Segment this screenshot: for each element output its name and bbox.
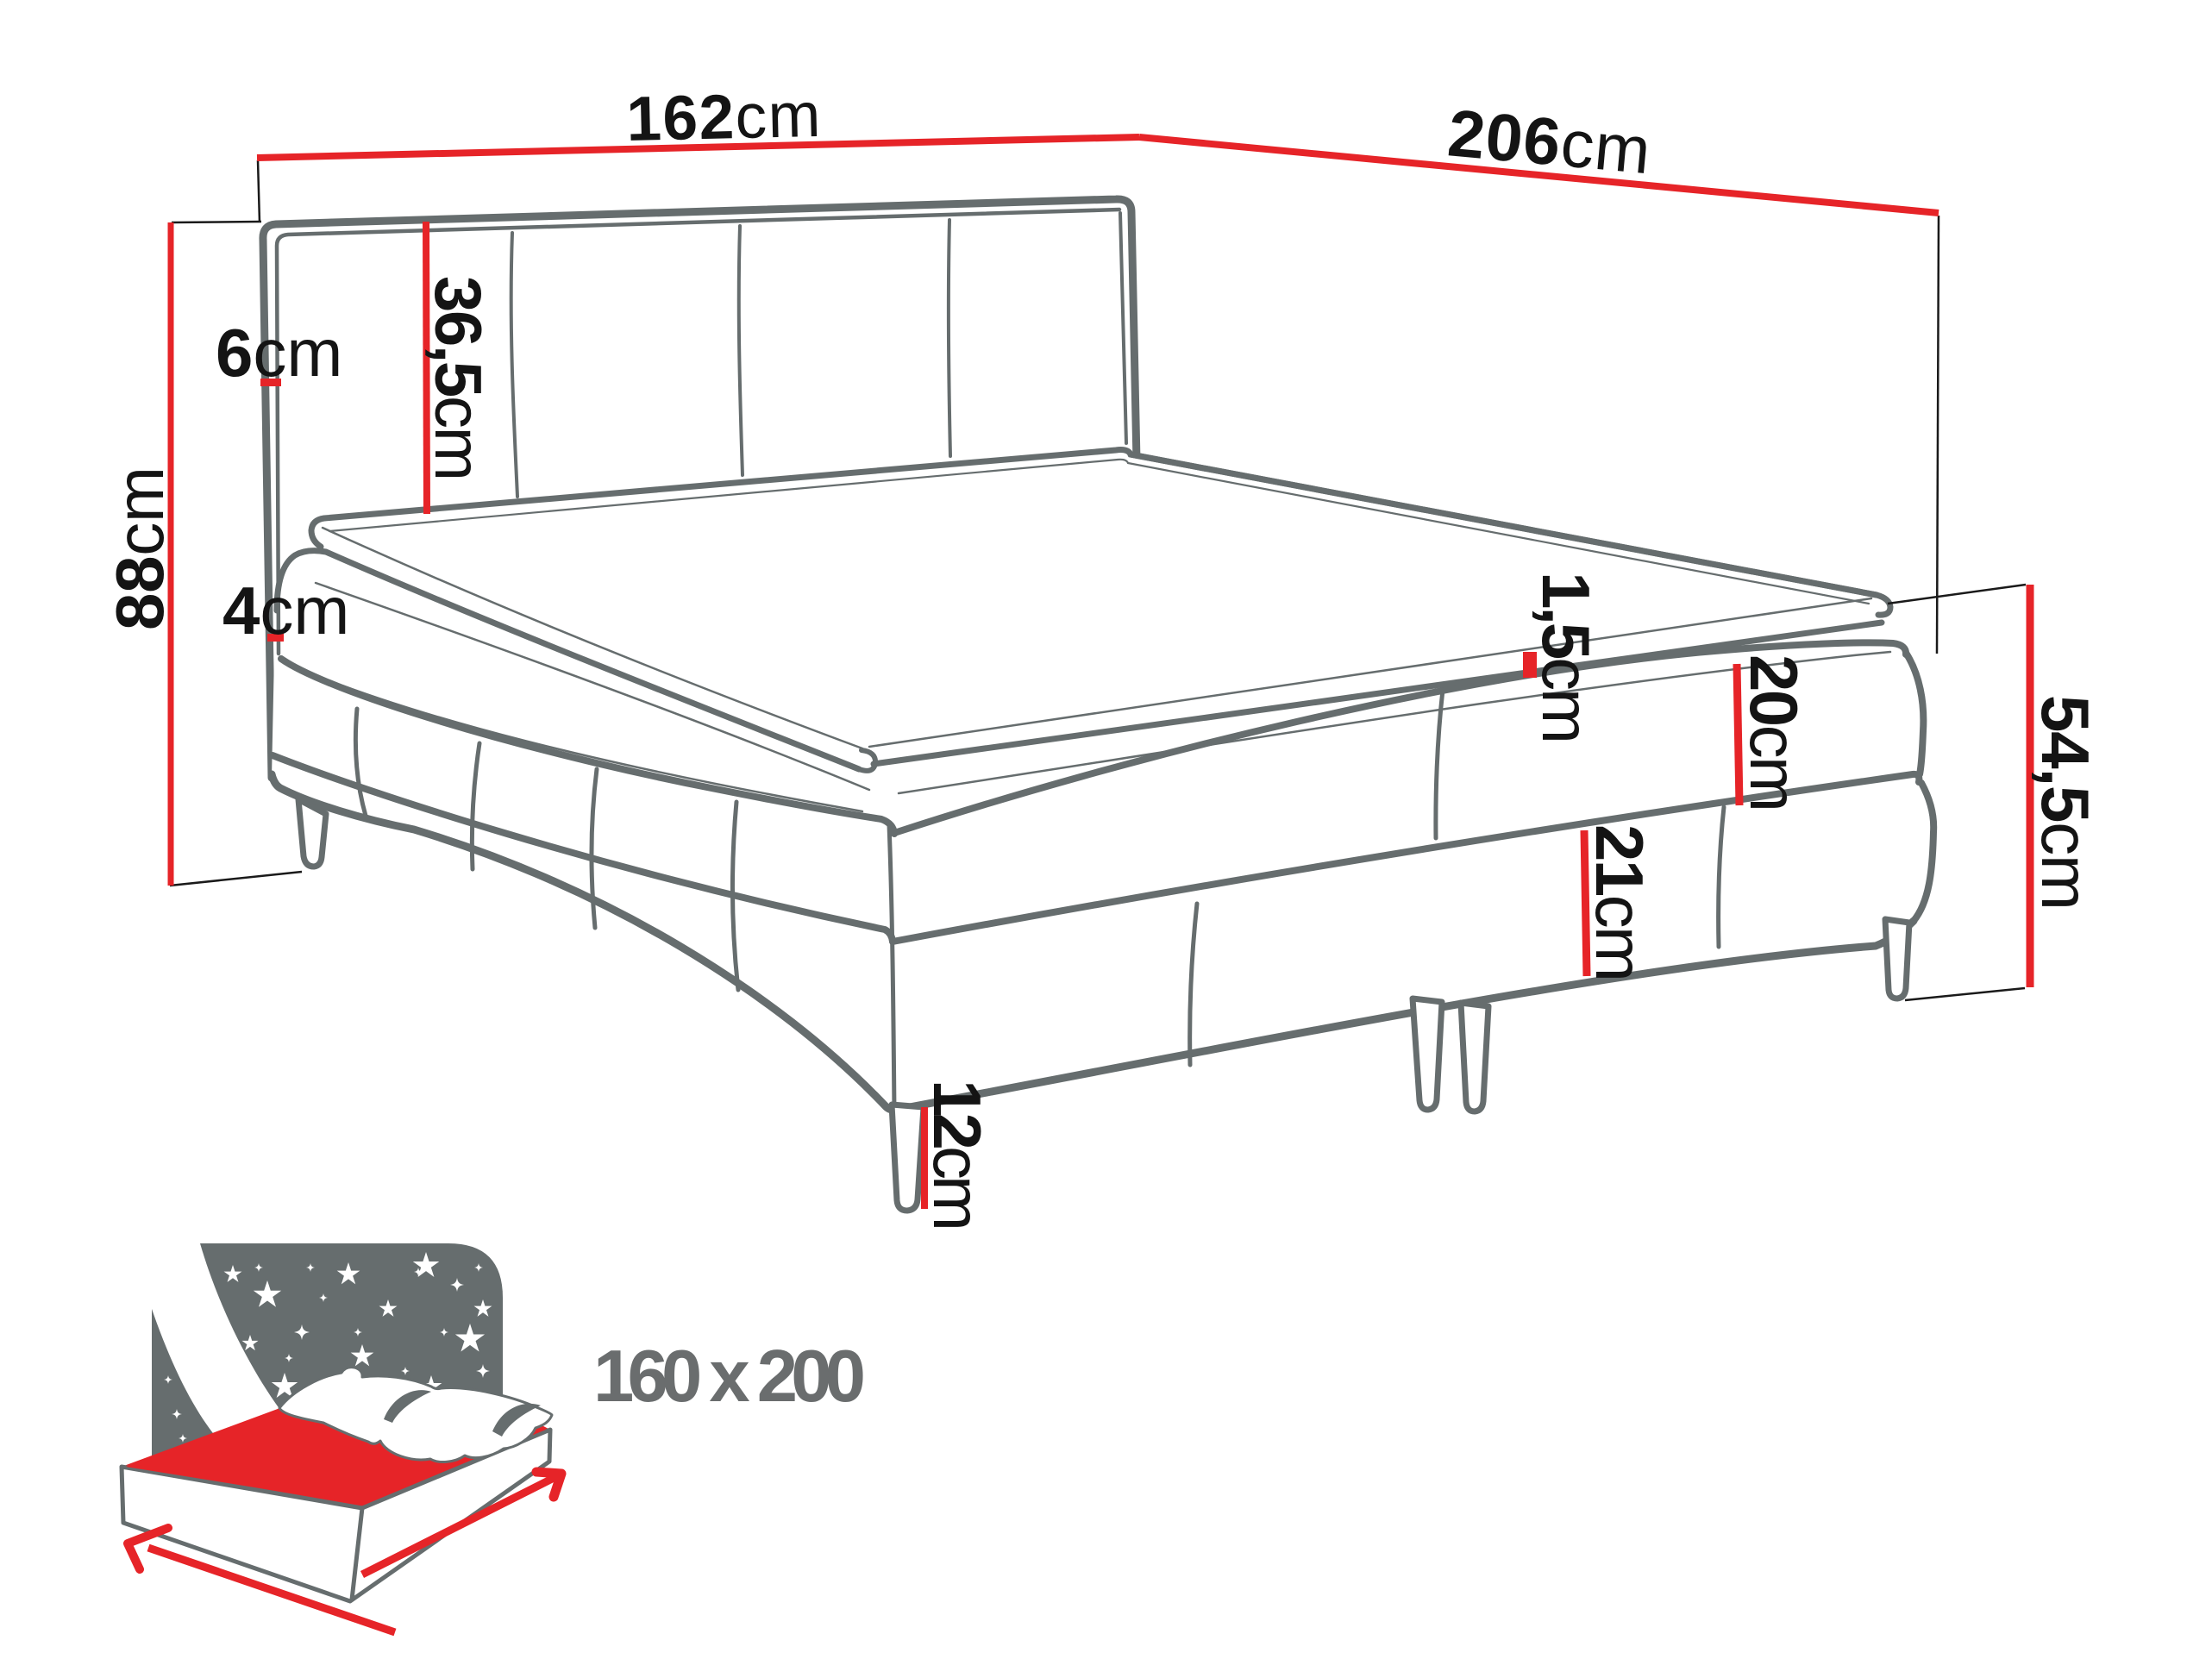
svg-text:6cm: 6cm [216, 315, 342, 391]
svg-text:160 x 200: 160 x 200 [593, 1336, 866, 1418]
svg-text:54,5cm: 54,5cm [2027, 695, 2103, 911]
svg-text:12cm: 12cm [919, 1080, 995, 1231]
svg-text:4cm: 4cm [222, 573, 349, 648]
svg-text:21cm: 21cm [1582, 824, 1657, 982]
svg-text:20cm: 20cm [1736, 654, 1812, 812]
svg-text:1,5cm: 1,5cm [1528, 572, 1604, 744]
svg-text:162cm: 162cm [626, 80, 822, 154]
svg-text:36,5cm: 36,5cm [421, 276, 494, 481]
svg-text:88cm: 88cm [102, 466, 178, 630]
